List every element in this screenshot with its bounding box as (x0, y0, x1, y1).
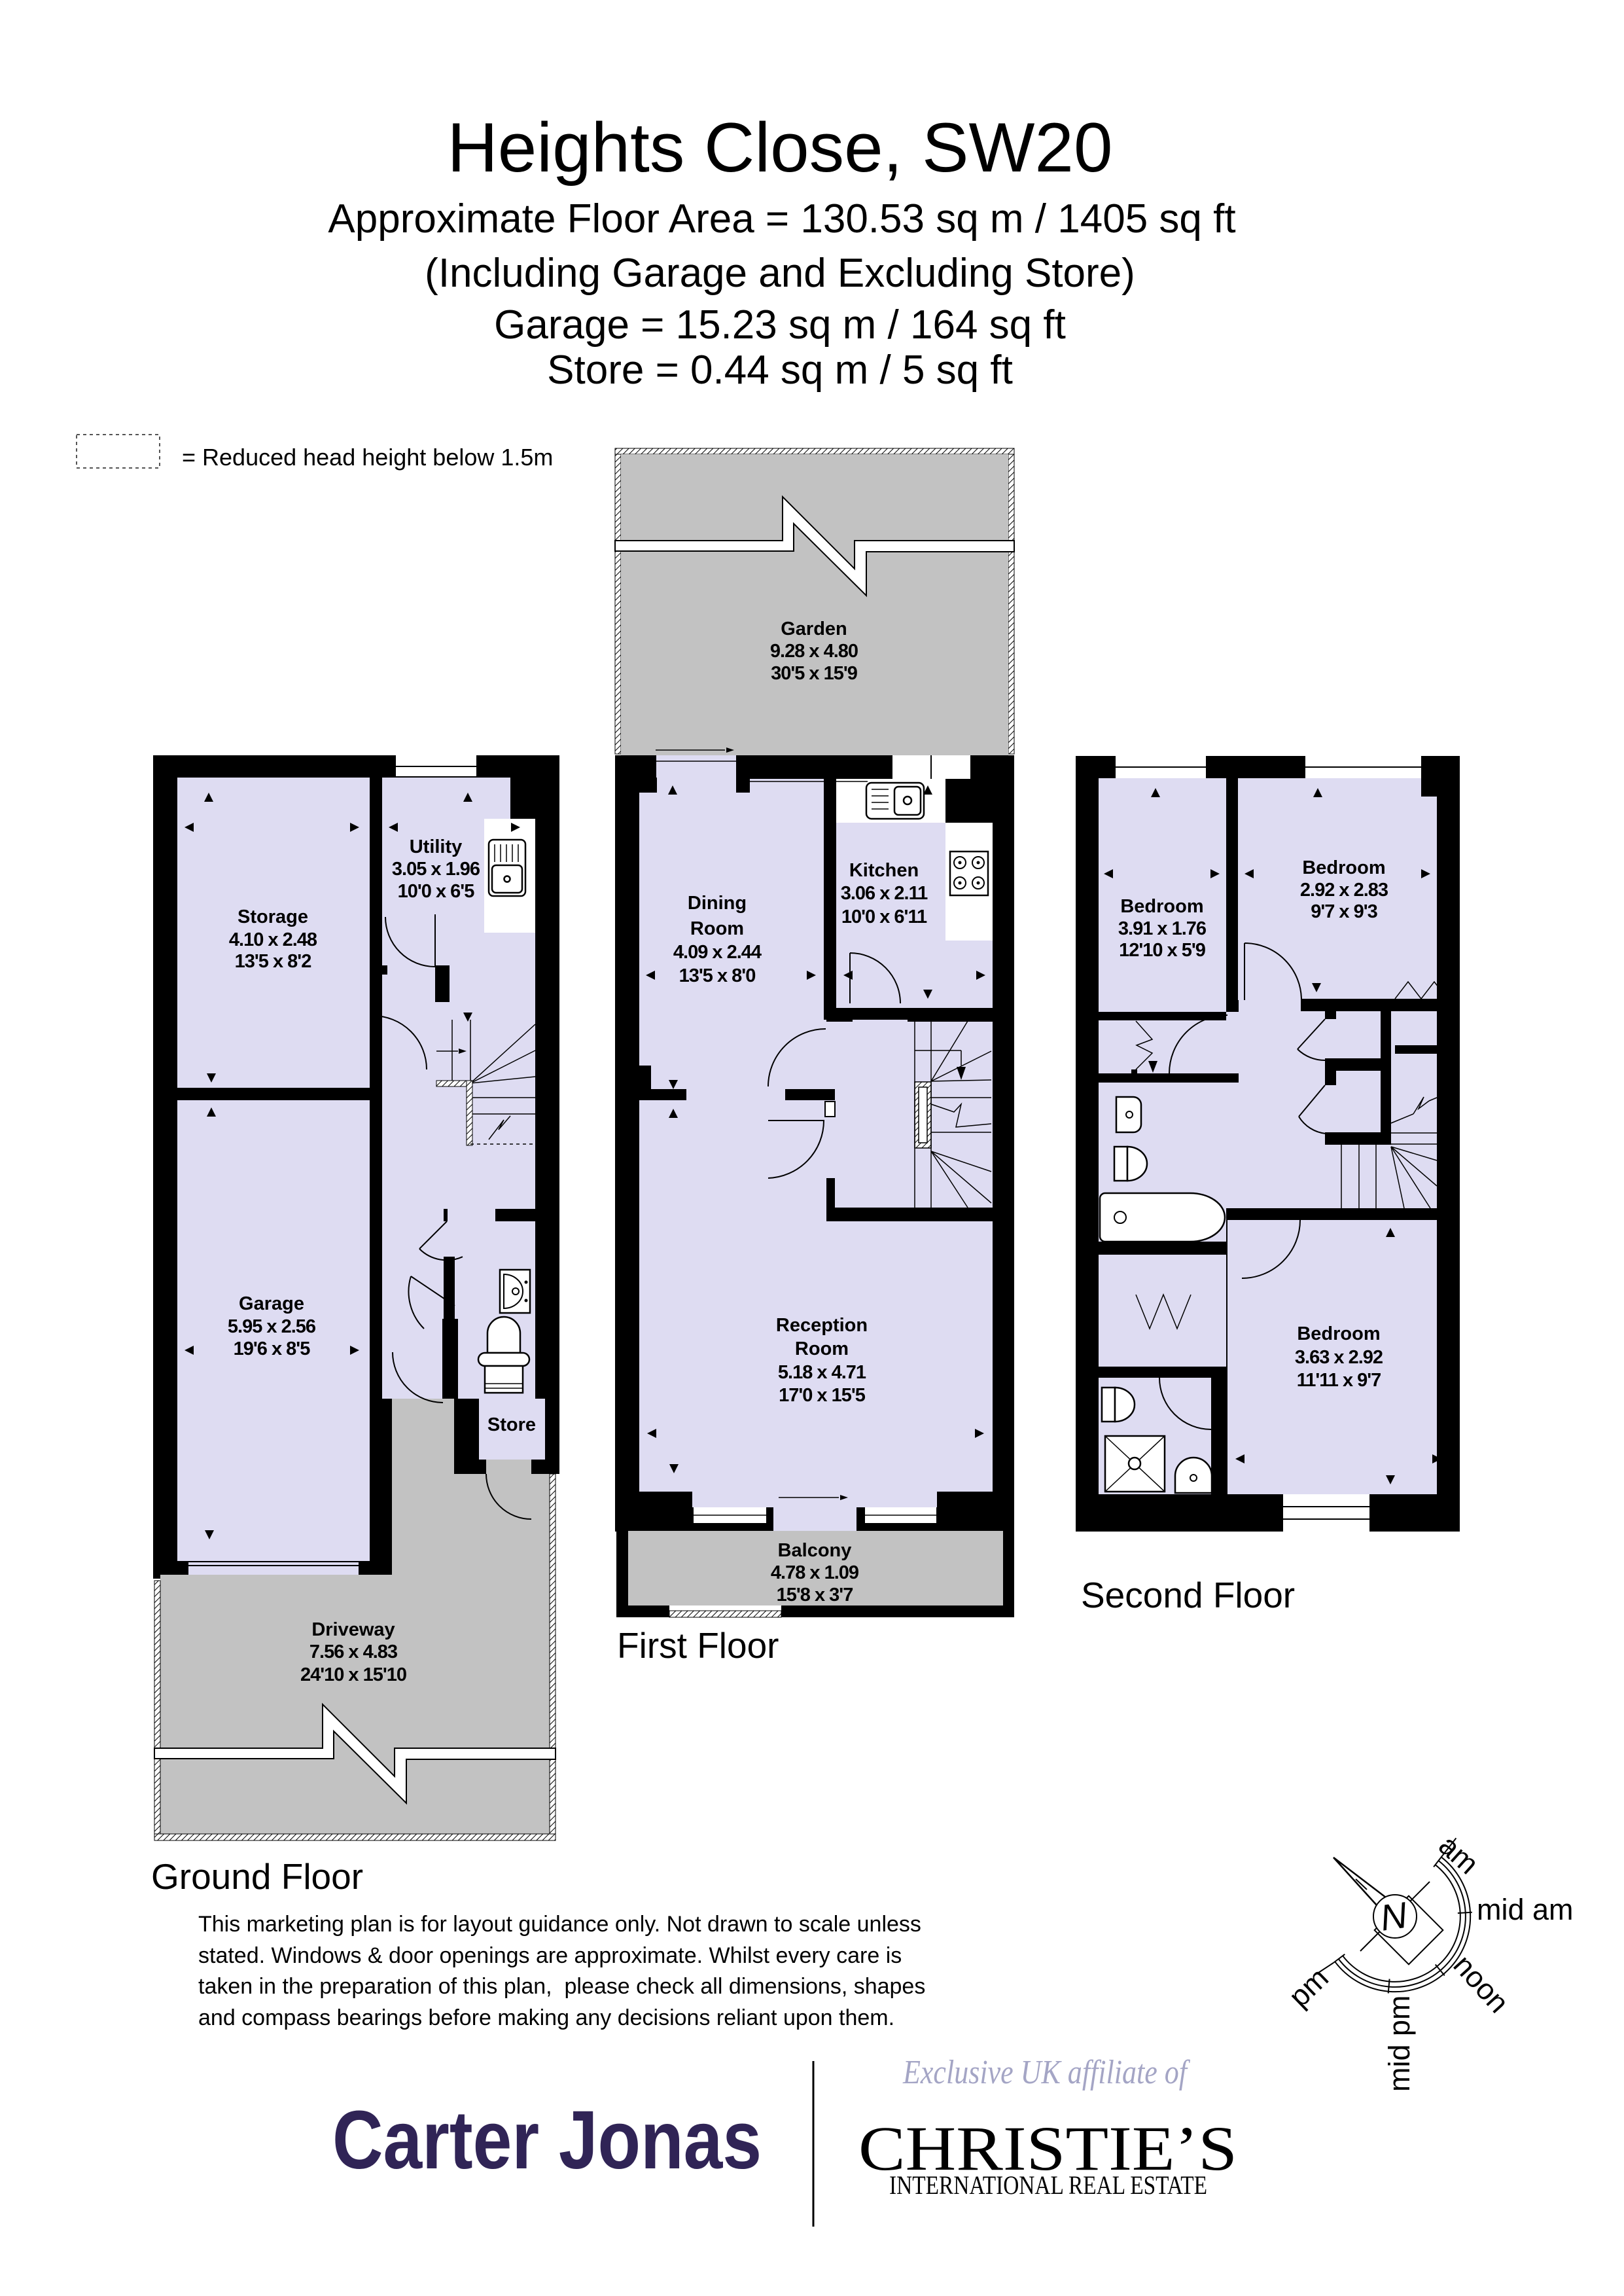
svg-text:Room: Room (690, 918, 744, 939)
svg-text:17'0 x 15'5: 17'0 x 15'5 (779, 1385, 866, 1406)
svg-text:11'11 x 9'7: 11'11 x 9'7 (1297, 1370, 1381, 1391)
svg-text:13'5 x 8'2: 13'5 x 8'2 (235, 951, 311, 972)
svg-text:9'7 x 9'3: 9'7 x 9'3 (1311, 901, 1377, 922)
svg-text:INTERNATIONAL REAL ESTATE: INTERNATIONAL REAL ESTATE (889, 2170, 1207, 2200)
svg-text:Carter Jonas: Carter Jonas (332, 2094, 762, 2186)
svg-text:3.63 x 2.92: 3.63 x 2.92 (1295, 1347, 1383, 1368)
svg-text:24'10 x 15'10: 24'10 x 15'10 (300, 1664, 406, 1685)
svg-text:taken in the preparation of th: taken in the preparation of this plan, p… (198, 1974, 925, 1999)
svg-text:10'0 x 6'5: 10'0 x 6'5 (398, 881, 475, 902)
svg-text:stated. Windows & door opening: stated. Windows & door openings are appr… (198, 1943, 902, 1968)
svg-text:10'0 x 6'11: 10'0 x 6'11 (841, 906, 927, 927)
svg-text:30'5 x 15'9: 30'5 x 15'9 (771, 663, 858, 684)
svg-text:3.91 x 1.76: 3.91 x 1.76 (1118, 918, 1207, 939)
svg-text:Utility: Utility (410, 836, 463, 857)
svg-text:Ground Floor: Ground Floor (151, 1856, 363, 1897)
svg-text:15'8 x 3'7: 15'8 x 3'7 (777, 1585, 853, 1605)
svg-text:mid pm: mid pm (1383, 1995, 1416, 2092)
svg-text:Store = 0.44 sq m / 5 sq ft: Store = 0.44 sq m / 5 sq ft (547, 348, 1013, 393)
svg-text:Heights Close, SW20: Heights Close, SW20 (448, 108, 1113, 187)
svg-text:Approximate Floor Area = 130.5: Approximate Floor Area = 130.53 sq m / 1… (328, 196, 1235, 242)
svg-text:4.09 x 2.44: 4.09 x 2.44 (673, 942, 762, 963)
svg-text:Balcony: Balcony (778, 1540, 852, 1561)
svg-text:This marketing plan is for lay: This marketing plan is for layout guidan… (198, 1912, 921, 1937)
svg-text:(Including Garage and Excludin: (Including Garage and Excluding Store) (425, 251, 1135, 296)
svg-text:13'5 x 8'0: 13'5 x 8'0 (679, 965, 756, 986)
svg-text:Garden: Garden (781, 619, 847, 639)
svg-text:2.92 x 2.83: 2.92 x 2.83 (1300, 880, 1388, 901)
svg-text:Driveway: Driveway (311, 1619, 395, 1640)
svg-text:19'6 x 8'5: 19'6 x 8'5 (234, 1338, 311, 1359)
svg-text:12'10 x 5'9: 12'10 x 5'9 (1119, 940, 1206, 961)
svg-text:= Reduced head height below 1.: = Reduced head height below 1.5m (182, 444, 553, 471)
svg-text:Exclusive UK affiliate of: Exclusive UK affiliate of (902, 2054, 1190, 2091)
svg-text:Kitchen: Kitchen (849, 860, 919, 881)
svg-text:9.28 x 4.80: 9.28 x 4.80 (770, 641, 858, 662)
svg-text:Bedroom: Bedroom (1302, 857, 1385, 878)
svg-text:5.95 x 2.56: 5.95 x 2.56 (228, 1316, 316, 1337)
svg-text:and compass bearings before ma: and compass bearings before making any d… (198, 2005, 894, 2030)
svg-text:Second Floor: Second Floor (1081, 1575, 1295, 1615)
svg-text:Bedroom: Bedroom (1297, 1323, 1380, 1344)
svg-text:Storage: Storage (238, 906, 308, 927)
svg-text:mid am: mid am (1477, 1893, 1574, 1926)
svg-text:First Floor: First Floor (617, 1625, 779, 1666)
svg-text:3.06 x 2.11: 3.06 x 2.11 (841, 883, 928, 904)
svg-text:Room: Room (795, 1338, 849, 1359)
svg-text:5.18 x 4.71: 5.18 x 4.71 (778, 1362, 866, 1383)
svg-text:Dining: Dining (688, 893, 747, 914)
svg-text:3.05 x 1.96: 3.05 x 1.96 (392, 859, 480, 880)
svg-text:Garage = 15.23 sq m / 164 sq f: Garage = 15.23 sq m / 164 sq ft (494, 302, 1066, 348)
svg-text:7.56 x 4.83: 7.56 x 4.83 (309, 1641, 398, 1662)
svg-text:Store: Store (487, 1414, 536, 1435)
svg-text:Bedroom: Bedroom (1120, 896, 1203, 917)
svg-text:4.78 x 1.09: 4.78 x 1.09 (771, 1562, 859, 1583)
svg-text:4.10 x 2.48: 4.10 x 2.48 (229, 929, 317, 950)
svg-text:Reception: Reception (776, 1315, 868, 1336)
svg-text:Garage: Garage (239, 1293, 304, 1314)
